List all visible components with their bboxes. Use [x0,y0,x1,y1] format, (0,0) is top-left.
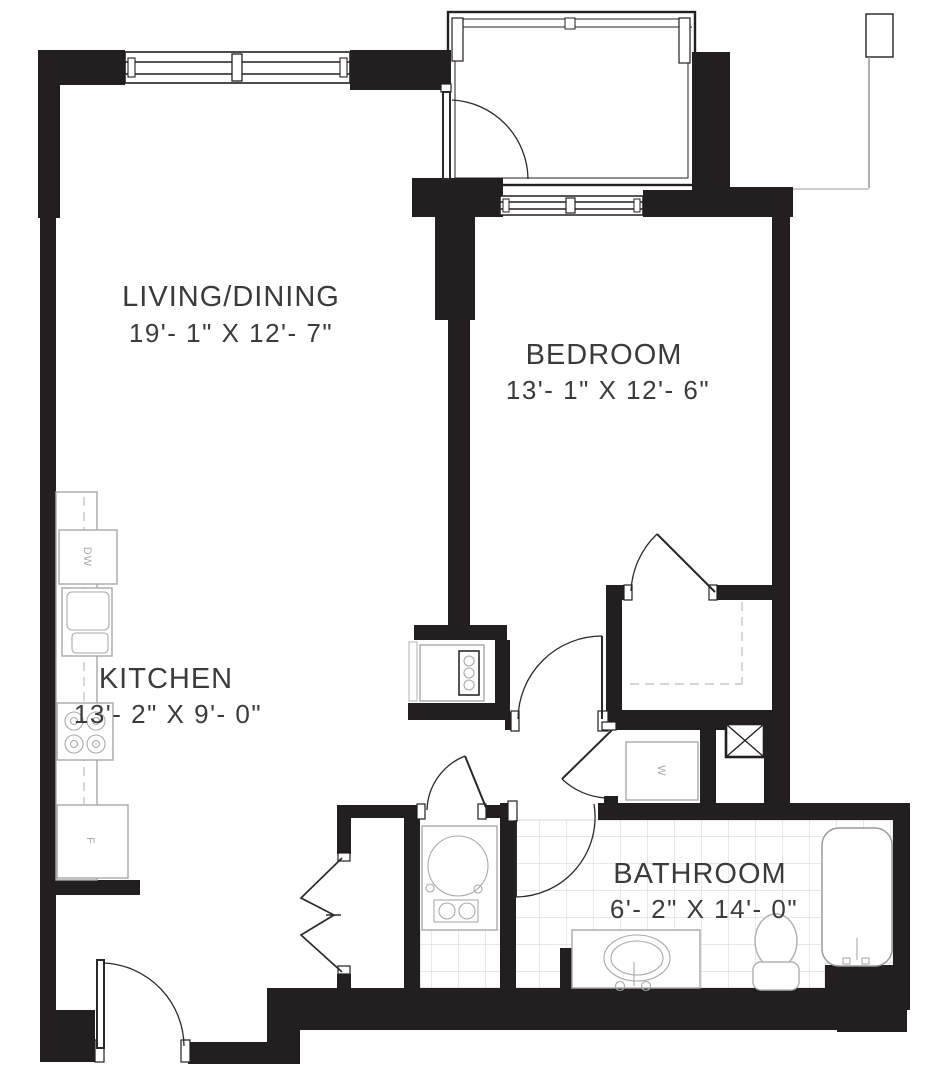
wall-segment [337,805,425,818]
utility-closet [409,642,484,701]
wall-segment [560,948,572,988]
balcony-railing-post-right [679,18,690,63]
wall-segment [188,1042,270,1064]
wall-segment [414,625,507,640]
wall-segment [643,190,730,217]
utility-appliance-panel [459,651,479,695]
wall-segment [700,727,716,807]
wall-segment [837,1010,907,1032]
living-room-dimensions: 19'- 1" X 12'- 7" [129,318,333,348]
wall-segment [337,818,351,854]
refrigerator: F [57,805,128,878]
floor-plan-page: DW F W [0,0,926,1070]
washer-room: W [626,742,698,800]
refrigerator-label: F [84,837,96,845]
wall-segment [598,803,910,820]
bathroom-dimensions: 6'- 2" X 14'- 0" [610,894,798,924]
wall-segment [300,988,837,1030]
wall-segment [404,818,420,988]
wall-segment [713,585,772,600]
balcony-slab-outline [448,12,695,185]
wall-segment [692,52,730,190]
bedroom-dimensions: 13'- 1" X 12'- 6" [506,375,710,405]
kitchen-dimensions: 13'- 2" X 9'- 0" [74,699,262,729]
wall-segment [337,974,351,990]
balcony-railing-tick [565,18,575,29]
water-heater-closet [422,826,497,930]
mechanical-shaft [726,724,764,757]
jamb [508,801,517,821]
living-room-label: LIVING/DINING [122,281,340,313]
dishwasher: DW [59,530,117,584]
wall-segment [40,1010,95,1062]
wall-segment [772,217,790,820]
jamb [441,84,451,92]
toilet [753,914,799,990]
jamb [181,1040,190,1062]
wall-segment [412,178,503,217]
wall-segment [267,988,300,1064]
bathroom-label: BATHROOM [613,858,786,890]
wall-segment [485,805,500,818]
wall-segment [606,600,622,712]
wall-segment [730,187,793,217]
utility-closet-opening [409,642,417,701]
wall-segment [408,703,510,720]
bedroom-label: BEDROOM [526,339,683,371]
wall-segment [55,880,140,895]
bathroom-vanity [572,930,700,991]
balcony-railing-post-left [452,18,463,61]
wall-segment [350,50,451,90]
dishwasher-label: DW [81,547,93,567]
wall-segment [495,640,510,703]
wall-segment [38,50,60,218]
washer-label: W [655,765,667,776]
wall-segment [604,796,618,804]
kitchen-sink [62,588,112,656]
wall-segment [435,217,475,320]
living-room-window [125,52,350,83]
balcony [448,12,695,185]
jamb [602,722,616,730]
kitchen-label: KITCHEN [99,663,233,695]
wall-segment [448,320,470,625]
floor-plan-svg: DW F W [0,0,926,1070]
bathtub [822,828,892,966]
wall-segment [500,803,516,988]
wall-segment [40,218,56,1010]
wall-segment [893,818,910,1010]
bedroom-window [500,196,643,215]
jamb [417,804,425,819]
